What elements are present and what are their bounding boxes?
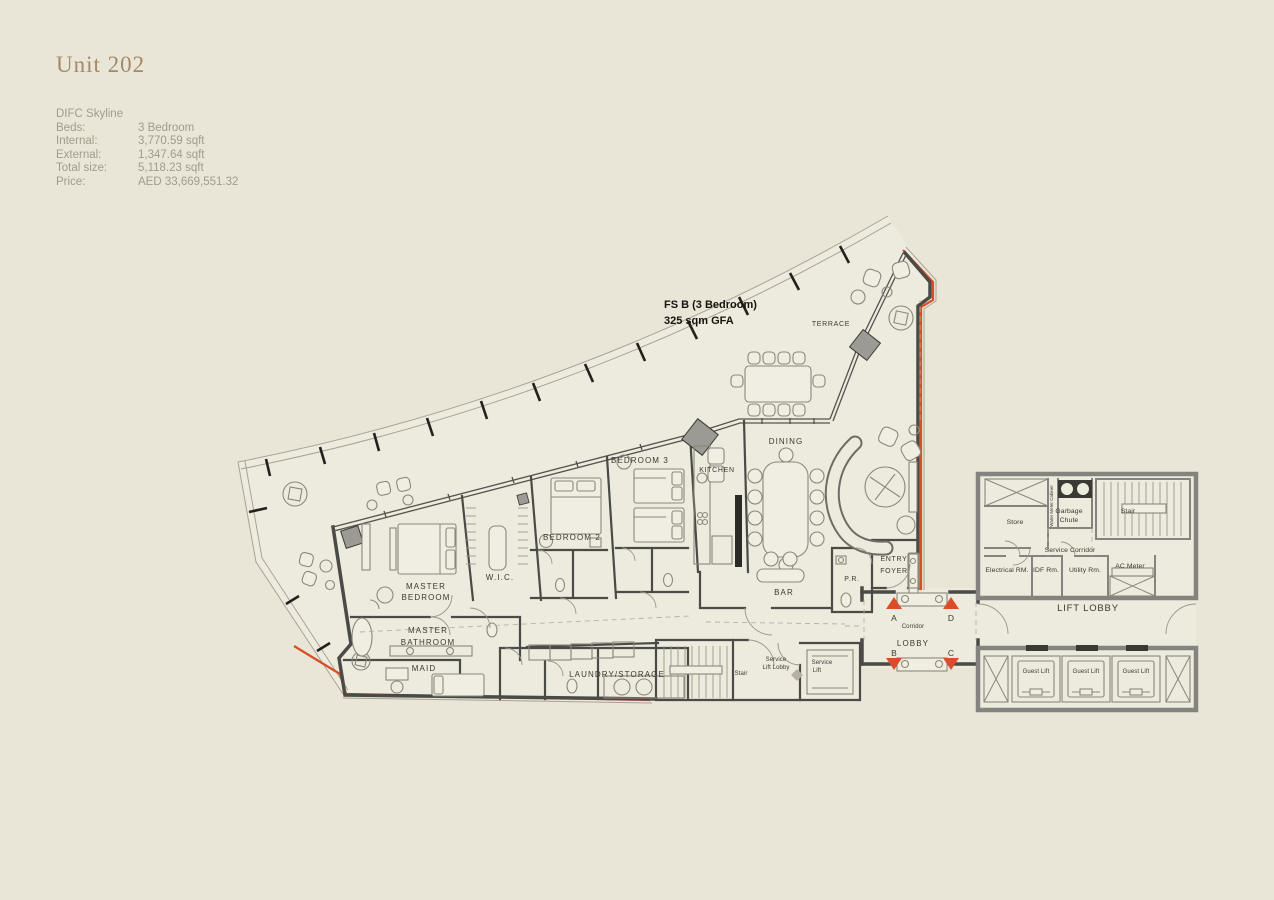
marker-a: A (891, 613, 897, 623)
label-master-bedroom-1: MASTER (406, 582, 446, 591)
label-lobby: LOBBY (897, 639, 929, 648)
label-ac-meter: AC Meter (1115, 563, 1145, 570)
label-master-bath-2: BATHROOM (401, 638, 455, 647)
label-service-corridor: Service Corridor (1045, 547, 1096, 554)
label-electrical: Electrical RM. (985, 567, 1028, 574)
label-dining: DINING (769, 437, 804, 446)
label-entry-2: FOYER (880, 568, 908, 575)
marker-c: C (948, 648, 954, 658)
label-service-stair: Stair (735, 671, 748, 677)
marker-b: B (891, 648, 897, 658)
label-core-stair: Stair (1121, 508, 1136, 515)
label-guest-lift-3: Guest Lift (1123, 669, 1150, 675)
garbage-chutes (1058, 480, 1092, 498)
label-terrace: TERRACE (812, 321, 850, 328)
label-bedroom3: BEDROOM 3 (611, 456, 669, 465)
label-garbage-1: Garbage (1055, 508, 1082, 515)
label-bar: BAR (774, 588, 794, 597)
label-service-lift-1: Service (812, 660, 833, 666)
label-guest-lift-2: Guest Lift (1073, 669, 1100, 675)
unit-type-annotation-line2: 325 sqm GFA (664, 315, 734, 327)
label-idf: IDF Rm. (1033, 567, 1059, 574)
label-laundry: LAUNDRY/STORAGE (569, 670, 665, 679)
label-pr: P.R. (844, 576, 860, 583)
label-bedroom2: BEDROOM 2 (543, 533, 601, 542)
label-water-meter: Water Meter Cabinet (1049, 485, 1054, 527)
lobby-door-top (897, 593, 947, 606)
label-service-lift-lobby-2: Lift Lobby (762, 665, 789, 671)
label-maid: MAID (412, 664, 436, 673)
label-service-lift-lobby-1: Service (766, 657, 787, 663)
unit-type-annotation-line1: FS B (3 Bedroom) (664, 299, 757, 311)
floorplan-svg: FS B (3 Bedroom) 325 sqm GFA TERRACE DIN… (0, 0, 1274, 900)
lobby-door-bottom (897, 658, 947, 671)
label-master-bath-1: MASTER (408, 626, 448, 635)
label-utility: Utility Rm. (1069, 567, 1101, 574)
label-store: Store (1007, 519, 1024, 526)
label-corridor: Corridor (902, 624, 924, 630)
label-wic: W.I.C. (486, 573, 514, 582)
label-guest-lift-1: Guest Lift (1023, 669, 1050, 675)
label-service-lift-2: Lift (813, 668, 822, 674)
label-master-bedroom-2: BEDROOM (401, 593, 450, 602)
label-lift-lobby: LIFT LOBBY (1057, 603, 1119, 614)
label-kitchen: KITCHEN (699, 467, 735, 474)
floorplan-page: Unit 202 DIFC Skyline Beds: 3 Bedroom In… (0, 0, 1274, 900)
marker-d: D (948, 613, 954, 623)
label-garbage-2: Chute (1060, 517, 1079, 524)
label-entry-1: ENTRY (880, 556, 907, 563)
